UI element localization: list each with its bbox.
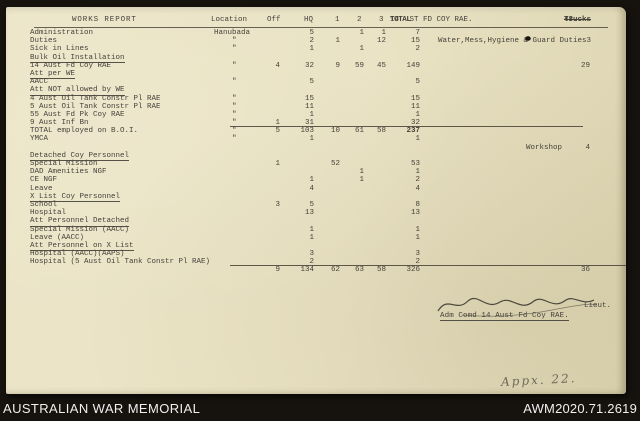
cell-note bbox=[420, 168, 562, 176]
table-row: 5 Aust Oil Tank Constr Pl RAE"1111 bbox=[6, 103, 626, 111]
cell-n3: 12 bbox=[364, 37, 386, 45]
cell-n1 bbox=[314, 234, 340, 242]
table-row: YMCA"11 bbox=[6, 135, 626, 143]
cell-n1 bbox=[314, 86, 340, 94]
report-title: WORKS REPORT bbox=[72, 15, 137, 26]
cell-n2 bbox=[340, 95, 364, 103]
cell-tot: 7 bbox=[386, 29, 420, 37]
cell-tot: 3 bbox=[386, 250, 420, 258]
table-row: Detached Coy Personnel bbox=[6, 152, 626, 160]
cell-note bbox=[420, 29, 562, 37]
cell-loc bbox=[212, 226, 272, 234]
table-row: 55 Aust Fd Pk Coy RAE"11 bbox=[6, 111, 626, 119]
cell-label: AACC bbox=[30, 78, 212, 86]
cell-far bbox=[562, 217, 590, 225]
cell-tot bbox=[386, 217, 420, 225]
cell-far bbox=[562, 127, 590, 135]
table-row: Leave (AACC)11 bbox=[6, 234, 626, 242]
table-row: Hospital1313 bbox=[6, 209, 626, 217]
cell-label: Att Personnel on X List bbox=[30, 242, 212, 250]
total-header-prefix: 14 bbox=[390, 15, 399, 26]
column-header-2: 2 bbox=[357, 15, 362, 26]
cell-n2 bbox=[340, 250, 364, 258]
cell-off bbox=[272, 37, 280, 45]
cell-n1 bbox=[314, 45, 340, 53]
cell-n3 bbox=[364, 152, 386, 160]
cell-label: Att NOT allowed by WE bbox=[30, 86, 212, 94]
cell-n3 bbox=[364, 226, 386, 234]
cell-n3: 58 bbox=[364, 266, 386, 274]
cell-tot: 1 bbox=[386, 168, 420, 176]
table-row: 14 Aust Fd Coy RAE"4329594514929 bbox=[6, 62, 626, 70]
cell-n2 bbox=[340, 144, 364, 152]
cell-loc bbox=[212, 193, 272, 201]
cell-note bbox=[420, 217, 562, 225]
cell-n3 bbox=[364, 234, 386, 242]
cell-far bbox=[562, 95, 590, 103]
cell-note bbox=[420, 103, 562, 111]
cell-label: YMCA bbox=[30, 135, 212, 143]
cell-hq: 4 bbox=[280, 185, 314, 193]
cell-n2 bbox=[340, 209, 364, 217]
cell-n3 bbox=[364, 45, 386, 53]
header-rule-line bbox=[34, 27, 608, 28]
cell-n3: 45 bbox=[364, 62, 386, 70]
cell-note bbox=[420, 111, 562, 119]
cell-loc bbox=[212, 86, 272, 94]
cell-hq: 1 bbox=[280, 226, 314, 234]
cell-tot bbox=[386, 242, 420, 250]
cell-off bbox=[272, 144, 280, 152]
cell-hq bbox=[280, 54, 314, 62]
cell-note: Workshop bbox=[420, 144, 562, 152]
cell-hq bbox=[280, 168, 314, 176]
cell-note bbox=[420, 176, 562, 184]
cell-far bbox=[562, 234, 590, 242]
cell-tot: 1 bbox=[386, 226, 420, 234]
cell-n2 bbox=[340, 54, 364, 62]
table-header-row: WORKS REPORT Location Off HQ 1 2 3 14TOT… bbox=[6, 15, 618, 28]
cell-n2: 1 bbox=[340, 176, 364, 184]
cell-far: 4 bbox=[562, 144, 590, 152]
cell-n2 bbox=[340, 193, 364, 201]
cell-loc bbox=[212, 201, 272, 209]
cell-tot bbox=[386, 70, 420, 78]
cell-tot: 1 bbox=[386, 234, 420, 242]
cell-n3 bbox=[364, 111, 386, 119]
cell-off bbox=[272, 209, 280, 217]
cell-far bbox=[562, 242, 590, 250]
cell-n1 bbox=[314, 226, 340, 234]
cell-hq: 134 bbox=[280, 266, 314, 274]
cell-label: School bbox=[30, 201, 212, 209]
cell-n1 bbox=[314, 152, 340, 160]
cell-off bbox=[272, 226, 280, 234]
table-row: Att per WE bbox=[6, 70, 626, 78]
cell-off bbox=[272, 185, 280, 193]
cell-n3 bbox=[364, 95, 386, 103]
cell-note bbox=[420, 127, 562, 135]
cell-tot bbox=[386, 54, 420, 62]
cell-far bbox=[562, 176, 590, 184]
table-row: Sick in Lines"112 bbox=[6, 45, 626, 53]
cell-label: X List Coy Personnel bbox=[30, 193, 212, 201]
archive-photo-background: WORKS REPORT Location Off HQ 1 2 3 14TOT… bbox=[0, 0, 640, 421]
cell-n3 bbox=[364, 54, 386, 62]
signature-block: Lieut. Adm Comd 14 Aust Fd Coy RAE. bbox=[434, 289, 624, 329]
cell-far bbox=[562, 70, 590, 78]
cell-n3 bbox=[364, 193, 386, 201]
cell-label bbox=[30, 266, 212, 274]
table-row: School358 bbox=[6, 201, 626, 209]
cell-n2: 61 bbox=[340, 127, 364, 135]
cell-off: 4 bbox=[272, 62, 280, 70]
cell-n3 bbox=[364, 144, 386, 152]
cell-tot bbox=[386, 193, 420, 201]
cell-loc bbox=[212, 160, 272, 168]
cell-off bbox=[272, 135, 280, 143]
cell-tot: 1 bbox=[386, 135, 420, 143]
cell-label: Bulk Oil Installation bbox=[30, 54, 212, 62]
cell-n1 bbox=[314, 185, 340, 193]
cell-label: Sick in Lines bbox=[30, 45, 212, 53]
cell-hq: 1 bbox=[280, 176, 314, 184]
cell-far bbox=[562, 135, 590, 143]
cell-hq: 2 bbox=[280, 37, 314, 45]
cell-hq bbox=[280, 242, 314, 250]
cell-off: 1 bbox=[272, 160, 280, 168]
cell-far: 29 bbox=[562, 62, 590, 70]
cell-label: TOTAL employed on B.O.I. bbox=[30, 127, 212, 135]
cell-note bbox=[420, 135, 562, 143]
cell-label: Hospital bbox=[30, 209, 212, 217]
cell-off bbox=[272, 103, 280, 111]
cell-loc bbox=[212, 144, 272, 152]
table-row: Bulk Oil Installation bbox=[6, 54, 626, 62]
cell-off bbox=[272, 86, 280, 94]
cell-n1 bbox=[314, 168, 340, 176]
cell-loc: " bbox=[212, 135, 272, 143]
cell-off bbox=[272, 234, 280, 242]
cell-loc bbox=[212, 152, 272, 160]
cell-loc: " bbox=[212, 37, 272, 45]
cell-note: Water,Mess,Hygiene & Guard Duties3 bbox=[420, 37, 562, 45]
cell-n2: 1 bbox=[340, 45, 364, 53]
cell-tot bbox=[386, 144, 420, 152]
cell-n3: 58 bbox=[364, 127, 386, 135]
cell-note bbox=[420, 78, 562, 86]
cell-hq bbox=[280, 152, 314, 160]
cell-n1 bbox=[314, 250, 340, 258]
cell-note bbox=[420, 185, 562, 193]
cell-n3 bbox=[364, 201, 386, 209]
cell-far bbox=[562, 86, 590, 94]
cell-n2 bbox=[340, 242, 364, 250]
cell-hq: 15 bbox=[280, 95, 314, 103]
cell-far bbox=[562, 226, 590, 234]
cell-n2 bbox=[340, 86, 364, 94]
cell-loc bbox=[212, 185, 272, 193]
cell-far bbox=[562, 37, 590, 45]
cell-loc bbox=[212, 250, 272, 258]
cell-far bbox=[562, 103, 590, 111]
cell-n2 bbox=[340, 135, 364, 143]
cell-n2 bbox=[340, 152, 364, 160]
cell-hq: 13 bbox=[280, 209, 314, 217]
cell-hq: 5 bbox=[280, 29, 314, 37]
cell-label: Administration bbox=[30, 29, 212, 37]
cell-note bbox=[420, 54, 562, 62]
cell-note bbox=[420, 95, 562, 103]
cell-loc: " bbox=[212, 45, 272, 53]
cell-loc: " bbox=[212, 95, 272, 103]
cell-off: 9 bbox=[272, 266, 280, 274]
cell-n3 bbox=[364, 168, 386, 176]
table-row: 4 Aust Oil Tank Constr Pl RAE"1515 bbox=[6, 95, 626, 103]
cell-far bbox=[562, 152, 590, 160]
cell-note bbox=[420, 226, 562, 234]
cell-label: 9 Aust Inf Bn bbox=[30, 119, 212, 127]
cell-n3 bbox=[364, 78, 386, 86]
cell-hq: 1 bbox=[280, 111, 314, 119]
cell-far bbox=[562, 168, 590, 176]
cell-tot: 5 bbox=[386, 78, 420, 86]
cell-hq: 5 bbox=[280, 201, 314, 209]
awm-accession-number: AWM2020.71.2619 bbox=[523, 401, 637, 416]
cell-n1 bbox=[314, 54, 340, 62]
cell-n1: 62 bbox=[314, 266, 340, 274]
cell-tot: 2 bbox=[386, 45, 420, 53]
cell-far bbox=[562, 160, 590, 168]
cell-n3 bbox=[364, 160, 386, 168]
table-row: 913462635832636 bbox=[6, 266, 626, 274]
cell-label: Leave (AACC) bbox=[30, 234, 212, 242]
column-header-off: Off bbox=[267, 15, 281, 26]
cell-n3 bbox=[364, 185, 386, 193]
cell-loc bbox=[212, 209, 272, 217]
cell-note bbox=[420, 201, 562, 209]
cell-n2: 1 bbox=[340, 168, 364, 176]
cell-label: 5 Aust Oil Tank Constr Pl RAE bbox=[30, 103, 212, 111]
cell-n1: 10 bbox=[314, 127, 340, 135]
table-row: Hospital (AACC)(AAPS)33 bbox=[6, 250, 626, 258]
cell-far bbox=[562, 111, 590, 119]
cell-n1 bbox=[314, 95, 340, 103]
cell-label: Special Mission bbox=[30, 160, 212, 168]
cell-hq bbox=[280, 217, 314, 225]
cell-note bbox=[420, 152, 562, 160]
cell-n3 bbox=[364, 242, 386, 250]
cell-note bbox=[420, 86, 562, 94]
cell-far bbox=[562, 54, 590, 62]
table-row: Leave44 bbox=[6, 185, 626, 193]
cell-note bbox=[420, 250, 562, 258]
cell-tot: 2 bbox=[386, 176, 420, 184]
cell-n1 bbox=[314, 144, 340, 152]
cell-label: CE NGF bbox=[30, 176, 212, 184]
signature-role: Adm Comd 14 Aust Fd Coy RAE. bbox=[440, 312, 569, 321]
cell-tot: 149 bbox=[386, 62, 420, 70]
cell-loc: Hanubada bbox=[212, 29, 272, 37]
cell-tot: 15 bbox=[386, 37, 420, 45]
column-header-hq: HQ bbox=[304, 15, 313, 26]
cell-n3: 1 bbox=[364, 29, 386, 37]
cell-n2 bbox=[340, 103, 364, 111]
ink-blot bbox=[525, 36, 531, 41]
column-header-location: Location bbox=[211, 15, 247, 26]
cell-n3 bbox=[364, 103, 386, 111]
cell-n3 bbox=[364, 86, 386, 94]
cell-n2: 59 bbox=[340, 62, 364, 70]
table-row: Special Mission (AACC)11 bbox=[6, 226, 626, 234]
cell-loc bbox=[212, 176, 272, 184]
cell-note bbox=[420, 70, 562, 78]
cell-hq: 5 bbox=[280, 78, 314, 86]
cell-loc bbox=[212, 266, 272, 274]
cell-n2 bbox=[340, 70, 364, 78]
scanned-document-paper: WORKS REPORT Location Off HQ 1 2 3 14TOT… bbox=[6, 7, 626, 394]
cell-hq bbox=[280, 144, 314, 152]
cell-tot: 4 bbox=[386, 185, 420, 193]
cell-far bbox=[562, 209, 590, 217]
cell-tot: 1 bbox=[386, 111, 420, 119]
cell-n2 bbox=[340, 111, 364, 119]
cell-hq: 1 bbox=[280, 45, 314, 53]
cell-label: Att Personnel Detached bbox=[30, 217, 212, 225]
cell-n2: 63 bbox=[340, 266, 364, 274]
cell-label: DAD Amenities NGF bbox=[30, 168, 212, 176]
cell-note bbox=[420, 193, 562, 201]
cell-off bbox=[272, 45, 280, 53]
cell-loc bbox=[212, 54, 272, 62]
cell-hq bbox=[280, 193, 314, 201]
cell-off bbox=[272, 193, 280, 201]
cell-n1: 9 bbox=[314, 62, 340, 70]
cell-n1 bbox=[314, 70, 340, 78]
cell-n1 bbox=[314, 209, 340, 217]
cell-off bbox=[272, 54, 280, 62]
cell-note bbox=[420, 234, 562, 242]
cell-hq: 32 bbox=[280, 62, 314, 70]
cell-far bbox=[562, 185, 590, 193]
cell-hq: 1 bbox=[280, 135, 314, 143]
cell-label: 14 Aust Fd Coy RAE bbox=[30, 62, 212, 70]
table-row: Duties"211215Water,Mess,Hygiene & Guard … bbox=[6, 37, 626, 45]
column-header-3: 3 bbox=[379, 15, 384, 26]
cell-label: Leave bbox=[30, 185, 212, 193]
table-row: Att Personnel Detached bbox=[6, 217, 626, 225]
cell-n2: 1 bbox=[340, 29, 364, 37]
cell-note bbox=[420, 62, 562, 70]
cell-n1 bbox=[314, 78, 340, 86]
cell-tot: 15 bbox=[386, 95, 420, 103]
cell-tot: 53 bbox=[386, 160, 420, 168]
cell-n1: 52 bbox=[314, 160, 340, 168]
total-header-suffix: ST FD COY RAE. bbox=[410, 15, 473, 26]
table-row: CE NGF112 bbox=[6, 176, 626, 184]
cell-n1 bbox=[314, 111, 340, 119]
cell-note bbox=[420, 45, 562, 53]
cell-n1 bbox=[314, 201, 340, 209]
cell-label: Duties bbox=[30, 37, 212, 45]
cell-off bbox=[272, 111, 280, 119]
cell-hq: 3 bbox=[280, 250, 314, 258]
table-row: DAD Amenities NGF11 bbox=[6, 168, 626, 176]
table-row: TOTAL employed on B.O.I."5103106158237 bbox=[6, 127, 626, 135]
cell-loc: " bbox=[212, 127, 272, 135]
cell-label: Special Mission (AACC) bbox=[30, 226, 212, 234]
cell-n2 bbox=[340, 78, 364, 86]
cell-label: 4 Aust Oil Tank Constr Pl RAE bbox=[30, 95, 212, 103]
cell-n3 bbox=[364, 70, 386, 78]
cell-label: Att per WE bbox=[30, 70, 212, 78]
cell-n2 bbox=[340, 217, 364, 225]
cell-n1 bbox=[314, 103, 340, 111]
cell-loc: " bbox=[212, 111, 272, 119]
cell-tot: 8 bbox=[386, 201, 420, 209]
cell-n1 bbox=[314, 176, 340, 184]
cell-n1 bbox=[314, 242, 340, 250]
cell-loc: " bbox=[212, 103, 272, 111]
table-row: Att NOT allowed by WE bbox=[6, 86, 626, 94]
cell-off: 5 bbox=[272, 127, 280, 135]
table-row: X List Coy Personnel bbox=[6, 193, 626, 201]
cell-n3 bbox=[364, 209, 386, 217]
cell-far bbox=[562, 45, 590, 53]
cell-n1 bbox=[314, 135, 340, 143]
cell-hq: 1 bbox=[280, 234, 314, 242]
cell-n2 bbox=[340, 160, 364, 168]
cell-off bbox=[272, 95, 280, 103]
cell-n3 bbox=[364, 176, 386, 184]
cell-tot bbox=[386, 86, 420, 94]
column-header-1: 1 bbox=[335, 15, 340, 26]
cell-loc bbox=[212, 234, 272, 242]
cell-loc: " bbox=[212, 78, 272, 86]
trucks-header-number: 43. bbox=[564, 15, 578, 26]
cell-off bbox=[272, 78, 280, 86]
cell-far bbox=[562, 201, 590, 209]
cell-n3 bbox=[364, 217, 386, 225]
cell-loc bbox=[212, 70, 272, 78]
cell-label: Detached Coy Personnel bbox=[30, 152, 212, 160]
table-row: Special Mission15253 bbox=[6, 160, 626, 168]
cell-off: 3 bbox=[272, 201, 280, 209]
cell-n3 bbox=[364, 135, 386, 143]
cell-n2 bbox=[340, 226, 364, 234]
cell-n3 bbox=[364, 250, 386, 258]
cell-tot: 11 bbox=[386, 103, 420, 111]
cell-n1 bbox=[314, 193, 340, 201]
awm-caption-text: AUSTRALIAN WAR MEMORIAL bbox=[3, 401, 200, 416]
cell-loc bbox=[212, 168, 272, 176]
cell-n2 bbox=[340, 234, 364, 242]
cell-tot: 237 bbox=[386, 127, 420, 135]
cell-off bbox=[272, 152, 280, 160]
cell-label bbox=[30, 144, 212, 152]
cell-off bbox=[272, 217, 280, 225]
signature-rank: Lieut. bbox=[584, 302, 611, 310]
cell-n1 bbox=[314, 217, 340, 225]
cell-note bbox=[420, 266, 562, 274]
cell-loc: " bbox=[212, 62, 272, 70]
table-row: Att Personnel on X List bbox=[6, 242, 626, 250]
cell-tot bbox=[386, 152, 420, 160]
table-row: AdministrationHanubada5117 bbox=[6, 29, 626, 37]
cell-hq bbox=[280, 160, 314, 168]
cell-off bbox=[272, 168, 280, 176]
cell-label: 55 Aust Fd Pk Coy RAE bbox=[30, 111, 212, 119]
